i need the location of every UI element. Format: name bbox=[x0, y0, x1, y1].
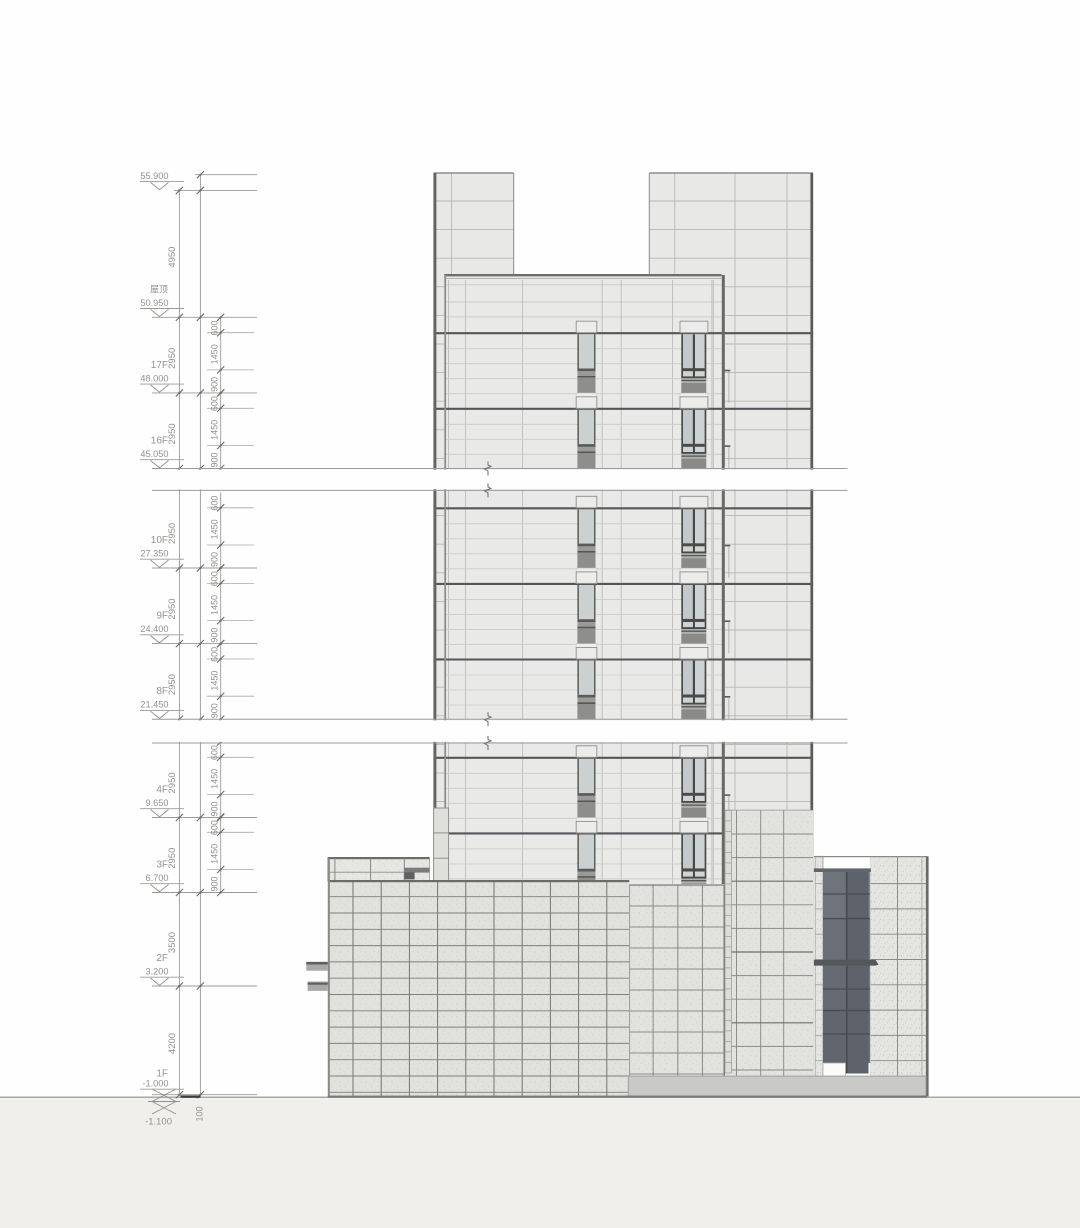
svg-text:900: 900 bbox=[210, 452, 220, 467]
svg-text:900: 900 bbox=[210, 552, 220, 567]
svg-text:10F: 10F bbox=[151, 535, 168, 546]
svg-text:1450: 1450 bbox=[210, 671, 220, 691]
svg-text:2950: 2950 bbox=[167, 674, 178, 695]
svg-text:2950: 2950 bbox=[167, 848, 178, 869]
svg-text:600: 600 bbox=[210, 647, 220, 662]
svg-text:屋顶: 屋顶 bbox=[150, 284, 168, 294]
svg-text:900: 900 bbox=[210, 703, 220, 718]
svg-text:1450: 1450 bbox=[210, 769, 220, 789]
svg-text:2F: 2F bbox=[156, 953, 168, 964]
svg-text:2950: 2950 bbox=[167, 598, 178, 619]
svg-text:600: 600 bbox=[210, 320, 220, 335]
svg-text:900: 900 bbox=[210, 628, 220, 643]
svg-text:4200: 4200 bbox=[167, 1033, 178, 1054]
svg-text:27.350: 27.350 bbox=[140, 549, 168, 559]
svg-text:4950: 4950 bbox=[167, 247, 178, 268]
svg-text:600: 600 bbox=[210, 496, 220, 511]
svg-text:50.950: 50.950 bbox=[140, 298, 168, 308]
svg-text:1450: 1450 bbox=[210, 519, 220, 539]
svg-text:2950: 2950 bbox=[167, 423, 178, 444]
svg-text:17F: 17F bbox=[151, 360, 168, 371]
svg-text:3.200: 3.200 bbox=[146, 967, 169, 977]
svg-text:900: 900 bbox=[210, 876, 220, 891]
svg-text:-1.100: -1.100 bbox=[145, 1117, 172, 1128]
svg-text:2950: 2950 bbox=[167, 523, 178, 544]
svg-text:48.000: 48.000 bbox=[140, 373, 168, 383]
svg-text:900: 900 bbox=[210, 801, 220, 816]
svg-text:600: 600 bbox=[210, 745, 220, 760]
svg-text:3500: 3500 bbox=[167, 932, 178, 953]
svg-text:100: 100 bbox=[195, 1106, 205, 1121]
svg-text:45.050: 45.050 bbox=[140, 449, 168, 459]
svg-text:9.650: 9.650 bbox=[146, 798, 169, 808]
svg-text:6.700: 6.700 bbox=[146, 873, 169, 883]
svg-text:24.400: 24.400 bbox=[140, 624, 168, 634]
svg-text:55.900: 55.900 bbox=[140, 171, 168, 181]
svg-text:2950: 2950 bbox=[167, 772, 178, 793]
svg-text:21.450: 21.450 bbox=[140, 700, 168, 710]
svg-text:2950: 2950 bbox=[167, 348, 178, 369]
svg-text:600: 600 bbox=[210, 396, 220, 411]
svg-text:16F: 16F bbox=[151, 436, 168, 447]
svg-text:900: 900 bbox=[210, 377, 220, 392]
svg-text:600: 600 bbox=[210, 820, 220, 835]
svg-text:1450: 1450 bbox=[210, 595, 220, 615]
svg-text:1450: 1450 bbox=[210, 844, 220, 864]
svg-text:1450: 1450 bbox=[210, 344, 220, 364]
svg-text:1450: 1450 bbox=[210, 420, 220, 440]
svg-text:600: 600 bbox=[210, 571, 220, 586]
svg-text:-1.000: -1.000 bbox=[142, 1079, 168, 1089]
